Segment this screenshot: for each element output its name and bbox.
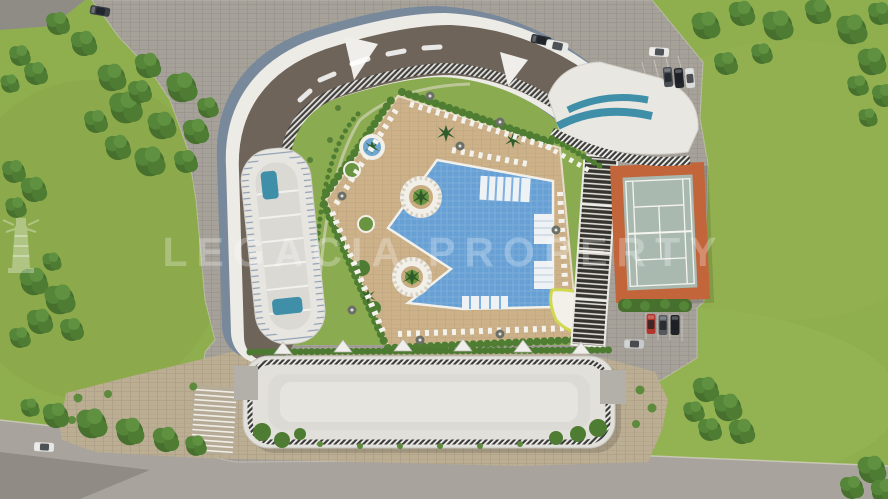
car-road-white: [34, 442, 54, 452]
plunge-pool: [260, 170, 279, 200]
car-black: [674, 68, 685, 89]
car-red: [647, 314, 656, 334]
garden-fountain: [359, 134, 385, 160]
car-gray: [659, 315, 668, 335]
car-white: [685, 68, 696, 89]
tennis-court: [610, 162, 714, 307]
car-dark: [663, 67, 674, 88]
car-white: [649, 47, 670, 57]
car-silver: [624, 339, 644, 349]
garage-roof-building: [234, 339, 626, 453]
plunge-pool: [272, 296, 304, 315]
aerial-site-plan: LEGACIA PROPERTY: [0, 0, 888, 499]
site-plan-render: [0, 0, 888, 499]
car-black: [671, 315, 680, 335]
